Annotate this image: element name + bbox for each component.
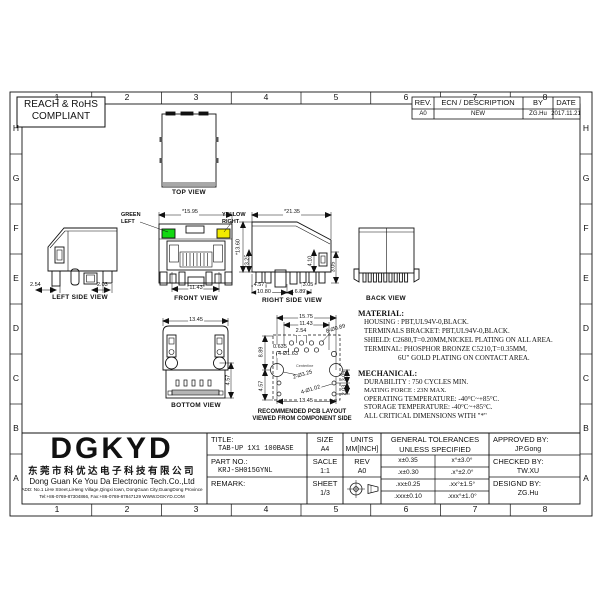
grid-row-label: F bbox=[13, 224, 18, 233]
dim-pcb-3_05: 3.05 bbox=[342, 371, 348, 382]
dim-pcb-13_45: 13.45 bbox=[298, 399, 314, 405]
left-side-view-label: LEFT SIDE VIEW bbox=[52, 295, 108, 302]
third-angle-projection-icon bbox=[347, 480, 378, 498]
rev-value: A0 bbox=[358, 468, 367, 475]
dim-right-b4: 6.89 bbox=[294, 290, 307, 296]
top-view-art bbox=[160, 112, 219, 187]
rev-table-cell: A0 bbox=[419, 111, 426, 117]
compliance-line2: COMPLIANT bbox=[32, 112, 90, 122]
dim-right-b1: 4.57 bbox=[253, 283, 266, 289]
rev-table-cell: NEW bbox=[471, 111, 485, 117]
rev-table-header-by: BY bbox=[533, 99, 543, 107]
pcb-caption-2: VIEWED FROM COMPONENT SIDE bbox=[252, 416, 351, 422]
rev-table-header-rev: REV. bbox=[415, 99, 432, 107]
grid-row-label: C bbox=[583, 374, 589, 383]
scale-value: 1:1 bbox=[320, 468, 330, 475]
dim-pcb-1_63: 4-Ø1.63 bbox=[277, 352, 299, 358]
tolerances-header-1: GENERAL TOLERANCES bbox=[391, 436, 479, 444]
pcb-caption-1: RECOMMENDED PCB LAYOUT bbox=[258, 409, 346, 415]
bottom-view-label: BOTTOM VIEW bbox=[171, 403, 221, 410]
back-view-art bbox=[354, 228, 419, 282]
engineering-drawing-sheet: 1 2 3 4 5 6 7 8 1 2 3 4 5 6 7 8 H G F E … bbox=[0, 0, 600, 600]
dim-front-width-top: *15.95 bbox=[181, 210, 199, 216]
grid-row-label: B bbox=[583, 424, 589, 433]
dim-pcb-2_54: 2.54 bbox=[295, 329, 308, 335]
tolerance-cell: x°±3.0° bbox=[451, 458, 472, 465]
right-side-view-label: RIGHT SIDE VIEW bbox=[262, 298, 322, 305]
back-view-label: BACK VIEW bbox=[366, 296, 406, 303]
grid-row-label: G bbox=[13, 174, 20, 183]
size-label: SIZE bbox=[317, 436, 334, 444]
grid-col-label: 5 bbox=[334, 505, 339, 514]
grid-col-label: 6 bbox=[404, 93, 409, 102]
rev-table-header-date: DATE bbox=[556, 99, 575, 107]
size-value: A4 bbox=[321, 446, 330, 453]
sheet-label: SHEET bbox=[312, 480, 337, 488]
dim-pcb-2_03: 2.03 bbox=[342, 385, 348, 396]
yellow-led-label-1: YELLOW bbox=[222, 213, 246, 219]
material-line: HOUSING : PBT,UL94V-0,BLACK. bbox=[364, 319, 469, 326]
designed-by-label: DESIGND BY: bbox=[493, 480, 541, 488]
part-no-label: PART NO.: bbox=[211, 458, 248, 466]
tolerance-cell: .xx±0.25 bbox=[396, 482, 421, 489]
dim-right-b2: 3.05 bbox=[302, 283, 315, 289]
grid-row-label: D bbox=[13, 324, 19, 333]
rev-table-cell: ZG.Hu bbox=[529, 111, 547, 117]
grid-row-label: A bbox=[583, 474, 589, 483]
grid-col-label: 4 bbox=[264, 505, 269, 514]
dim-right-b3: 10.80 bbox=[256, 290, 272, 296]
tolerance-cell: .xx°±1.5° bbox=[449, 482, 475, 489]
compliance-line1: REACH & RoHS bbox=[24, 100, 98, 110]
front-view-label: FRONT VIEW bbox=[174, 296, 218, 303]
title-value: TAB-UP 1X1 100BASE bbox=[218, 446, 294, 453]
company-name-cn: 东莞市科优达电子科技有限公司 bbox=[28, 467, 196, 477]
grid-row-label: B bbox=[13, 424, 19, 433]
material-header: MATERIAL: bbox=[358, 310, 404, 318]
grid-col-label: 6 bbox=[404, 505, 409, 514]
dim-right-height2: *3.25 bbox=[245, 255, 251, 268]
sheet-value: 1/3 bbox=[320, 490, 330, 497]
tolerances-header-2: UNLESS SPECIFIED bbox=[399, 446, 471, 454]
dim-right-mid: 4.10 bbox=[308, 256, 314, 267]
rev-label: REV bbox=[354, 458, 369, 466]
grid-row-label: H bbox=[13, 124, 19, 133]
units-value: MM[INCH] bbox=[346, 446, 379, 453]
mechanical-line: OPERATING TEMPERATURE: -40°C~+85°C. bbox=[364, 396, 499, 403]
mechanical-line: STORAGE TEMPERATURE: -40°C~+85°C. bbox=[364, 404, 492, 411]
grid-row-label: E bbox=[583, 274, 589, 283]
part-no-value: KRJ-SH015GYNL bbox=[218, 468, 273, 475]
tolerance-cell: .x°±2.0° bbox=[451, 470, 474, 477]
dim-left-2_54: 2.54 bbox=[30, 283, 41, 289]
grid-col-label: 3 bbox=[194, 93, 199, 102]
mechanical-line: DURABILITY : 750 CYCLES MIN. bbox=[364, 379, 468, 386]
tolerance-cell: x±0.35 bbox=[398, 458, 417, 465]
top-view-label: TOP VIEW bbox=[172, 190, 206, 197]
dim-pcb-0_635: 0.635 bbox=[272, 345, 288, 351]
mechanical-line: ALL CRITICAL DIMENSIONS WITH "*" bbox=[364, 413, 487, 420]
grid-col-label: 8 bbox=[543, 505, 548, 514]
grid-col-label: 5 bbox=[334, 93, 339, 102]
rev-table-header-ecn: ECN / DESCRIPTION bbox=[441, 99, 514, 107]
dim-pcb-11_43: 11.43 bbox=[298, 322, 313, 328]
dim-pcb-4_57: 4.57 bbox=[259, 381, 265, 392]
grid-col-label: 3 bbox=[194, 505, 199, 514]
company-contact: Tel:+86-0769-87304866, Fax:+86-0769-8784… bbox=[39, 495, 184, 500]
dim-bottom-width: 13.45 bbox=[188, 318, 204, 324]
approved-by-value: JP.Gong bbox=[515, 446, 541, 453]
grid-row-label: E bbox=[13, 274, 19, 283]
tolerance-cell: .xxx°±1.0° bbox=[447, 494, 476, 501]
dim-front-width-bottom: 11.43 bbox=[188, 286, 203, 292]
grid-col-label: 2 bbox=[125, 505, 130, 514]
grid-col-label: 1 bbox=[55, 505, 60, 514]
dim-right-height1: *13.60 bbox=[236, 239, 242, 255]
checked-by-label: CHECKED BY: bbox=[493, 458, 543, 466]
material-line: TERMINAL: PHOSPHOR BRONZE C5210,T=0.35MM… bbox=[364, 346, 527, 353]
front-view-yellow-led bbox=[217, 229, 230, 238]
dim-bottom-right: 4.57 bbox=[226, 375, 232, 386]
grid-col-label: 2 bbox=[125, 93, 130, 102]
dim-right-side: 3.05 bbox=[331, 262, 337, 273]
company-address: ADD: No.1 LiHe Street,LiHeng Village,Qin… bbox=[21, 488, 202, 493]
green-led-label-2: LEFT bbox=[121, 220, 135, 226]
bottom-view-art bbox=[163, 318, 234, 398]
tolerance-cell: .xxx±0.10 bbox=[394, 494, 422, 501]
designed-by-value: ZG.Hu bbox=[518, 490, 539, 497]
grid-col-label: 4 bbox=[264, 93, 269, 102]
material-line: TERMINALS BRACKET: PBT,UL94V-0,BLACK. bbox=[364, 328, 510, 335]
scale-label: SACLE bbox=[313, 458, 338, 466]
dim-pcb-15_75: 15.75 bbox=[298, 315, 314, 321]
green-led-label-1: GREEN bbox=[121, 213, 141, 219]
company-name-en: Dong Guan Ke You Da Electronic Tech.Co.,… bbox=[29, 478, 194, 486]
mechanical-header: MECHANICAL: bbox=[358, 370, 417, 378]
tolerance-cell: .x±0.30 bbox=[397, 470, 418, 477]
grid-row-label: C bbox=[13, 374, 19, 383]
dim-pcb-8_89: 8.89 bbox=[259, 347, 265, 358]
material-line: SHIELD: C2680,T=0.20MM,NICKEL PLATING ON… bbox=[364, 337, 553, 344]
company-logo: DGKYD bbox=[50, 434, 173, 464]
units-label: UNITS bbox=[351, 436, 374, 444]
material-line: 6U" GOLD PLATING ON CONTACT AREA. bbox=[398, 355, 530, 362]
remark-label: REMARK: bbox=[211, 480, 245, 488]
checked-by-value: TW.XU bbox=[517, 468, 539, 475]
grid-row-label: A bbox=[13, 474, 19, 483]
front-view-art bbox=[140, 212, 232, 292]
grid-col-label: 8 bbox=[543, 93, 548, 102]
mechanical-line: MATING FORCE : 23N MAX. bbox=[364, 388, 447, 395]
approved-by-label: APPROVED BY: bbox=[493, 436, 548, 444]
rev-table-cell: 2017.11.21 bbox=[551, 111, 581, 117]
grid-row-label: H bbox=[583, 124, 589, 133]
grid-row-label: G bbox=[583, 174, 590, 183]
grid-col-label: 7 bbox=[473, 505, 478, 514]
dim-left-2_03: 2.03 bbox=[97, 283, 108, 289]
yellow-led-label-2: RIGHT bbox=[222, 220, 239, 226]
dim-right-width: *21.35 bbox=[283, 210, 301, 216]
title-label: TITLE: bbox=[211, 436, 234, 444]
grid-row-label: F bbox=[583, 224, 588, 233]
grid-row-label: D bbox=[583, 324, 589, 333]
